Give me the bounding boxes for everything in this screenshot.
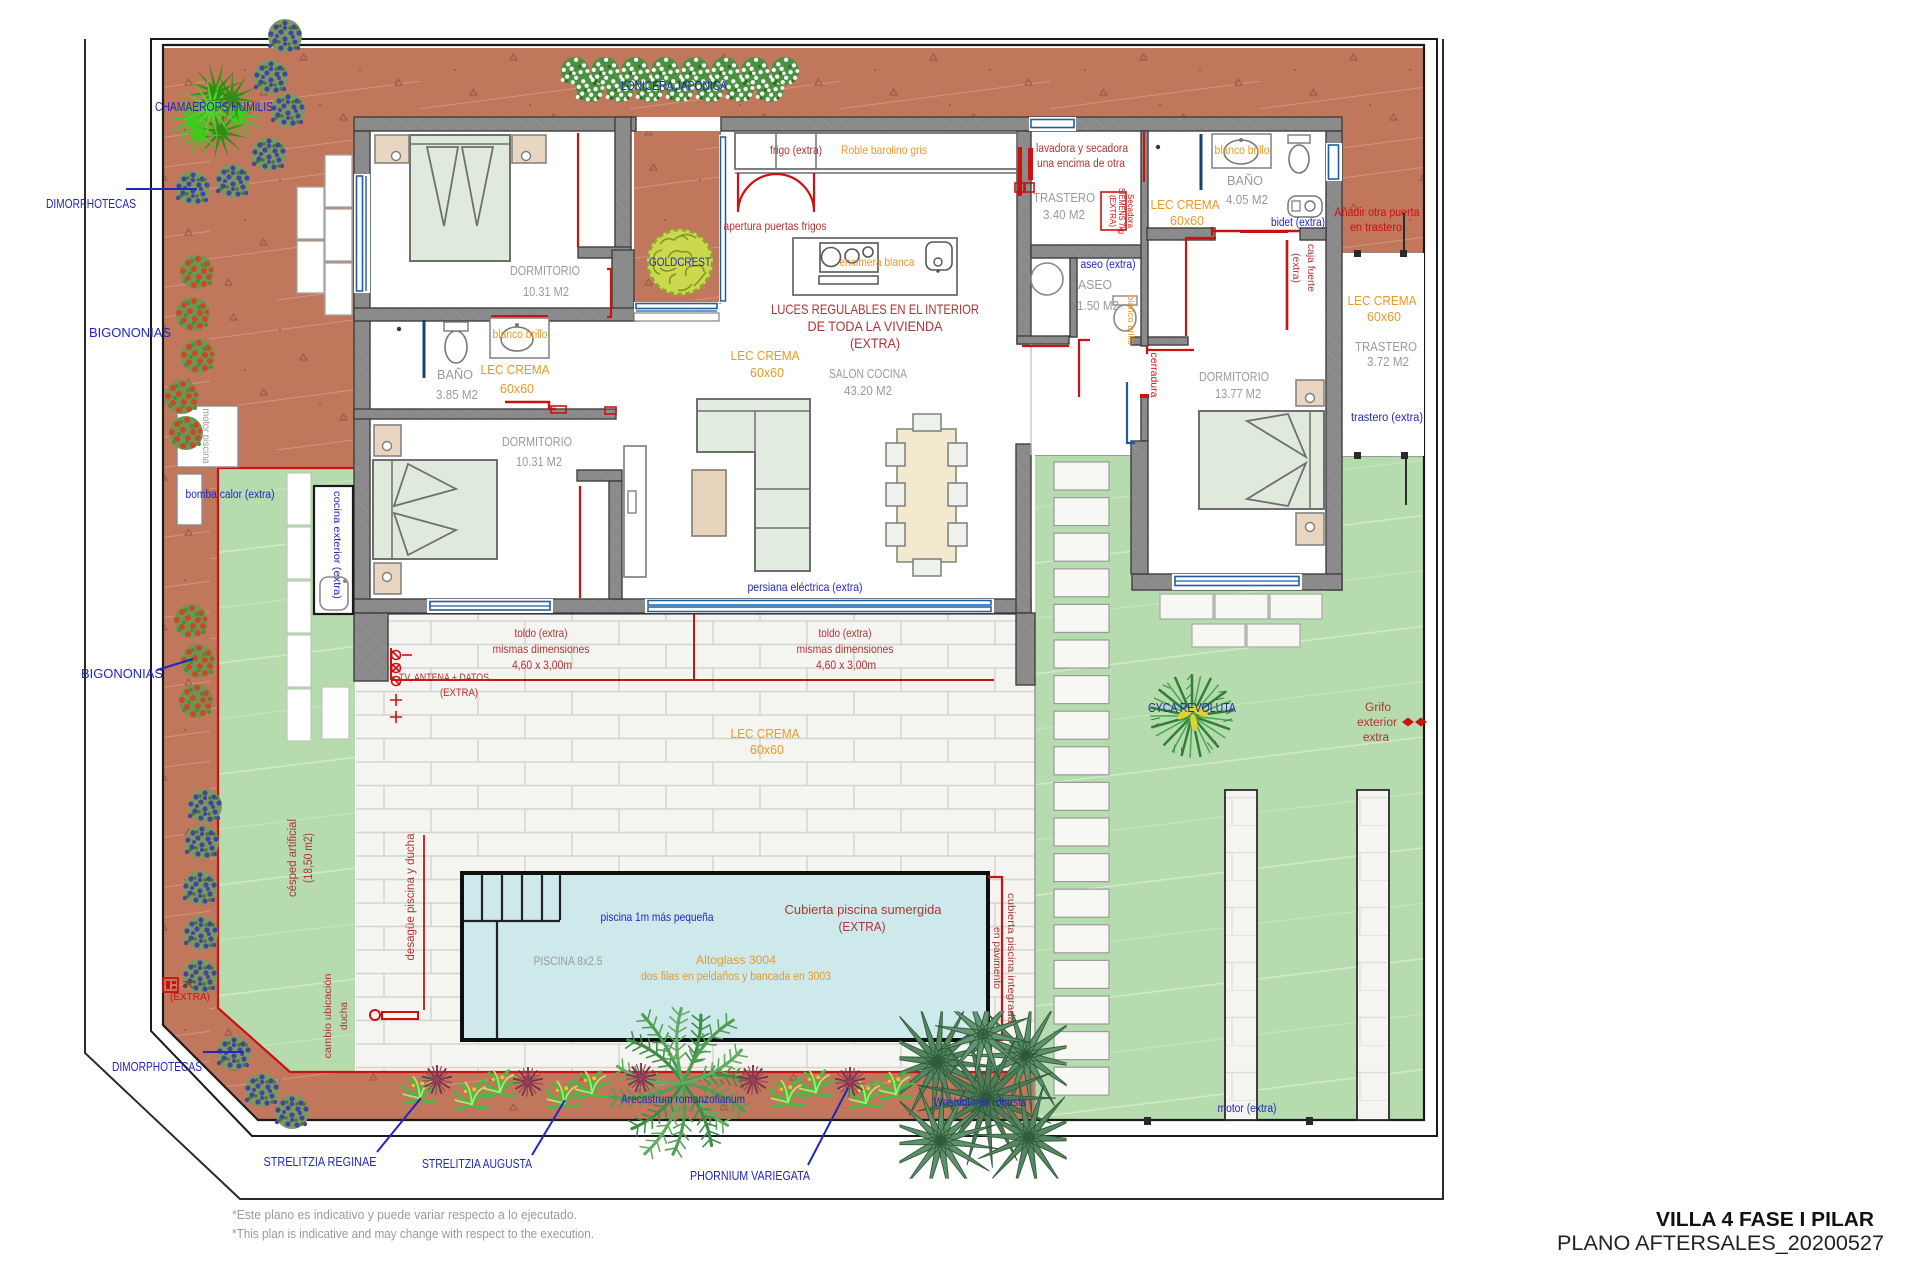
svg-text:Grifo: Grifo (1365, 702, 1391, 714)
svg-text:en pavimento: en pavimento (991, 927, 1003, 989)
svg-text:cambio ubicación: cambio ubicación (322, 973, 334, 1058)
svg-text:LONICERA JAPONICA: LONICERA JAPONICA (621, 79, 728, 93)
svg-text:3.40 M2: 3.40 M2 (1043, 207, 1085, 222)
svg-text:*This plan is indicative and m: *This plan is indicative and may change … (232, 1227, 594, 1241)
svg-text:TV, ANTENA + DATOS: TV, ANTENA + DATOS (399, 672, 489, 684)
svg-text:PLANO AFTERSALES_20200527: PLANO AFTERSALES_20200527 (1557, 1231, 1884, 1255)
svg-text:Añadir otra puerta: Añadir otra puerta (1335, 207, 1421, 219)
svg-text:(EXTRA): (EXTRA) (850, 335, 900, 351)
svg-text:en trastero: en trastero (1350, 222, 1402, 234)
svg-text:DORMITORIO: DORMITORIO (1199, 369, 1269, 384)
svg-text:BIGONONIAS: BIGONONIAS (89, 326, 171, 340)
svg-text:DORMITORIO: DORMITORIO (502, 434, 572, 449)
svg-text:(EXTRA): (EXTRA) (839, 920, 886, 934)
svg-text:BAÑO: BAÑO (1227, 173, 1263, 188)
svg-text:apertura puertas frigos: apertura puertas frigos (724, 219, 827, 233)
svg-text:aseo (extra): aseo (extra) (1081, 259, 1136, 271)
svg-text:(18,50 m2): (18,50 m2) (303, 833, 315, 883)
svg-text:CHAMAEROPS HUMILIS: CHAMAEROPS HUMILIS (155, 100, 273, 114)
svg-text:BAÑO: BAÑO (437, 367, 473, 382)
svg-text:(EXTRA): (EXTRA) (170, 992, 210, 1003)
svg-text:césped artificial: césped artificial (287, 819, 299, 897)
svg-text:STRELITZIA AUGUSTA: STRELITZIA AUGUSTA (422, 1157, 533, 1171)
svg-text:LEC CREMA: LEC CREMA (481, 362, 550, 377)
svg-text:TC: TC (183, 980, 197, 991)
svg-text:LEC CREMA: LEC CREMA (731, 348, 800, 363)
svg-text:toldo (extra): toldo (extra) (515, 626, 568, 640)
svg-text:LEC CREMA: LEC CREMA (1348, 293, 1417, 308)
svg-text:60x60: 60x60 (750, 365, 784, 380)
svg-text:bomba calor (extra): bomba calor (extra) (186, 489, 275, 501)
svg-text:(extra): (extra) (1290, 253, 1301, 283)
svg-text:una encima de otra: una encima de otra (1037, 158, 1126, 170)
svg-text:LUCES REGULABLES EN EL INTERIO: LUCES REGULABLES EN EL INTERIOR (771, 301, 979, 317)
svg-text:blanco brillo: blanco brillo (1215, 145, 1270, 157)
svg-text:DIMORPHOTECAS: DIMORPHOTECAS (112, 1060, 202, 1074)
svg-text:PHORNIUM VARIEGATA: PHORNIUM VARIEGATA (690, 1169, 811, 1183)
svg-text:TRASTERO: TRASTERO (1355, 339, 1417, 354)
svg-text:13.77 M2: 13.77 M2 (1215, 386, 1261, 401)
svg-text:*Este plano es indicativo y pu: *Este plano es indicativo y puede variar… (232, 1208, 577, 1222)
svg-text:dos filas en peldaños y bancad: dos filas en peldaños y bancada en 3003 (641, 971, 831, 983)
svg-text:bidet (extra): bidet (extra) (1271, 217, 1325, 229)
svg-text:cubierta piscina integrada: cubierta piscina integrada (1005, 893, 1017, 1023)
svg-text:DIMORPHOTECAS: DIMORPHOTECAS (46, 197, 136, 211)
svg-text:BIGONONIAS: BIGONONIAS (81, 667, 163, 681)
svg-text:mismas dimensiones: mismas dimensiones (493, 642, 590, 656)
svg-text:LEC CREMA: LEC CREMA (731, 726, 800, 741)
svg-text:Washigtonia robusta: Washigtonia robusta (934, 1095, 1027, 1109)
svg-text:Altoglass 3004: Altoglass 3004 (696, 953, 776, 967)
svg-text:10.31 M2: 10.31 M2 (516, 454, 562, 469)
svg-text:Roble barolino gris: Roble barolino gris (841, 143, 927, 157)
svg-text:caja fuerte: caja fuerte (1305, 244, 1316, 292)
svg-text:60x60: 60x60 (1367, 309, 1401, 324)
svg-text:toldo (extra): toldo (extra) (819, 626, 872, 640)
svg-text:ducha: ducha (338, 1002, 350, 1030)
svg-text:43.20 M2: 43.20 M2 (844, 383, 892, 398)
svg-text:LEC CREMA: LEC CREMA (1151, 197, 1220, 212)
svg-text:cocina exterior (extra): cocina exterior (extra) (331, 491, 343, 599)
svg-text:blanco brillo: blanco brillo (493, 329, 548, 341)
svg-text:piscina 1m más pequeña: piscina 1m más pequeña (601, 910, 714, 924)
svg-text:TRASTERO: TRASTERO (1033, 190, 1095, 205)
svg-text:3.72 M2: 3.72 M2 (1367, 354, 1409, 369)
svg-text:SALON COCINA: SALON COCINA (829, 366, 907, 381)
svg-text:cerradura: cerradura (1148, 353, 1159, 398)
svg-text:60x60: 60x60 (500, 381, 534, 396)
svg-text:GOLDCREST: GOLDCREST (649, 257, 711, 269)
svg-text:DE TODA LA VIVIENDA: DE TODA LA VIVIENDA (808, 318, 944, 334)
svg-text:blanco brillo: blanco brillo (1126, 295, 1136, 345)
svg-text:4,60 x 3,00m: 4,60 x 3,00m (512, 658, 572, 672)
svg-text:ASEO: ASEO (1078, 277, 1112, 292)
svg-text:encimera blanca: encimera blanca (840, 255, 915, 269)
svg-text:desagüe piscina y ducha: desagüe piscina y ducha (405, 833, 417, 961)
svg-text:(EXTRA): (EXTRA) (440, 687, 478, 699)
svg-text:60x60: 60x60 (1170, 213, 1204, 228)
svg-text:VILLA 4 FASE I PILAR: VILLA 4 FASE I PILAR (1656, 1208, 1874, 1231)
svg-text:motor piscina: motor piscina (200, 409, 211, 464)
svg-text:DORMITORIO: DORMITORIO (510, 263, 580, 278)
svg-text:(EXTRA): (EXTRA) (1108, 195, 1118, 227)
svg-text:PISCINA 8x2.5: PISCINA 8x2.5 (534, 954, 603, 968)
svg-text:STRELITZIA REGINAE: STRELITZIA REGINAE (264, 1155, 377, 1169)
svg-text:Cubierta piscina sumergida: Cubierta piscina sumergida (785, 903, 942, 917)
svg-text:CYCA REVOLUTA: CYCA REVOLUTA (1148, 701, 1237, 715)
svg-text:3.85 M2: 3.85 M2 (436, 387, 478, 402)
svg-text:mismas dimensiones: mismas dimensiones (797, 642, 894, 656)
svg-text:motor (extra): motor (extra) (1218, 1103, 1277, 1115)
svg-text:exterior: exterior (1357, 717, 1397, 729)
svg-text:extra: extra (1363, 732, 1390, 744)
svg-text:persiana eléctrica (extra): persiana eléctrica (extra) (748, 580, 863, 594)
svg-text:1.50 M2: 1.50 M2 (1077, 298, 1119, 313)
svg-text:Arecastrum romanzofianum: Arecastrum romanzofianum (621, 1092, 745, 1106)
svg-text:10.31 M2: 10.31 M2 (523, 284, 569, 299)
svg-text:trastero (extra): trastero (extra) (1351, 412, 1423, 424)
svg-text:4.05 M2: 4.05 M2 (1226, 192, 1268, 207)
svg-text:frigo (extra): frigo (extra) (770, 143, 822, 157)
svg-text:lavadora y secadora: lavadora y secadora (1036, 143, 1129, 155)
svg-text:60x60: 60x60 (750, 742, 784, 757)
svg-text:4,60 x 3,00m: 4,60 x 3,00m (816, 658, 876, 672)
